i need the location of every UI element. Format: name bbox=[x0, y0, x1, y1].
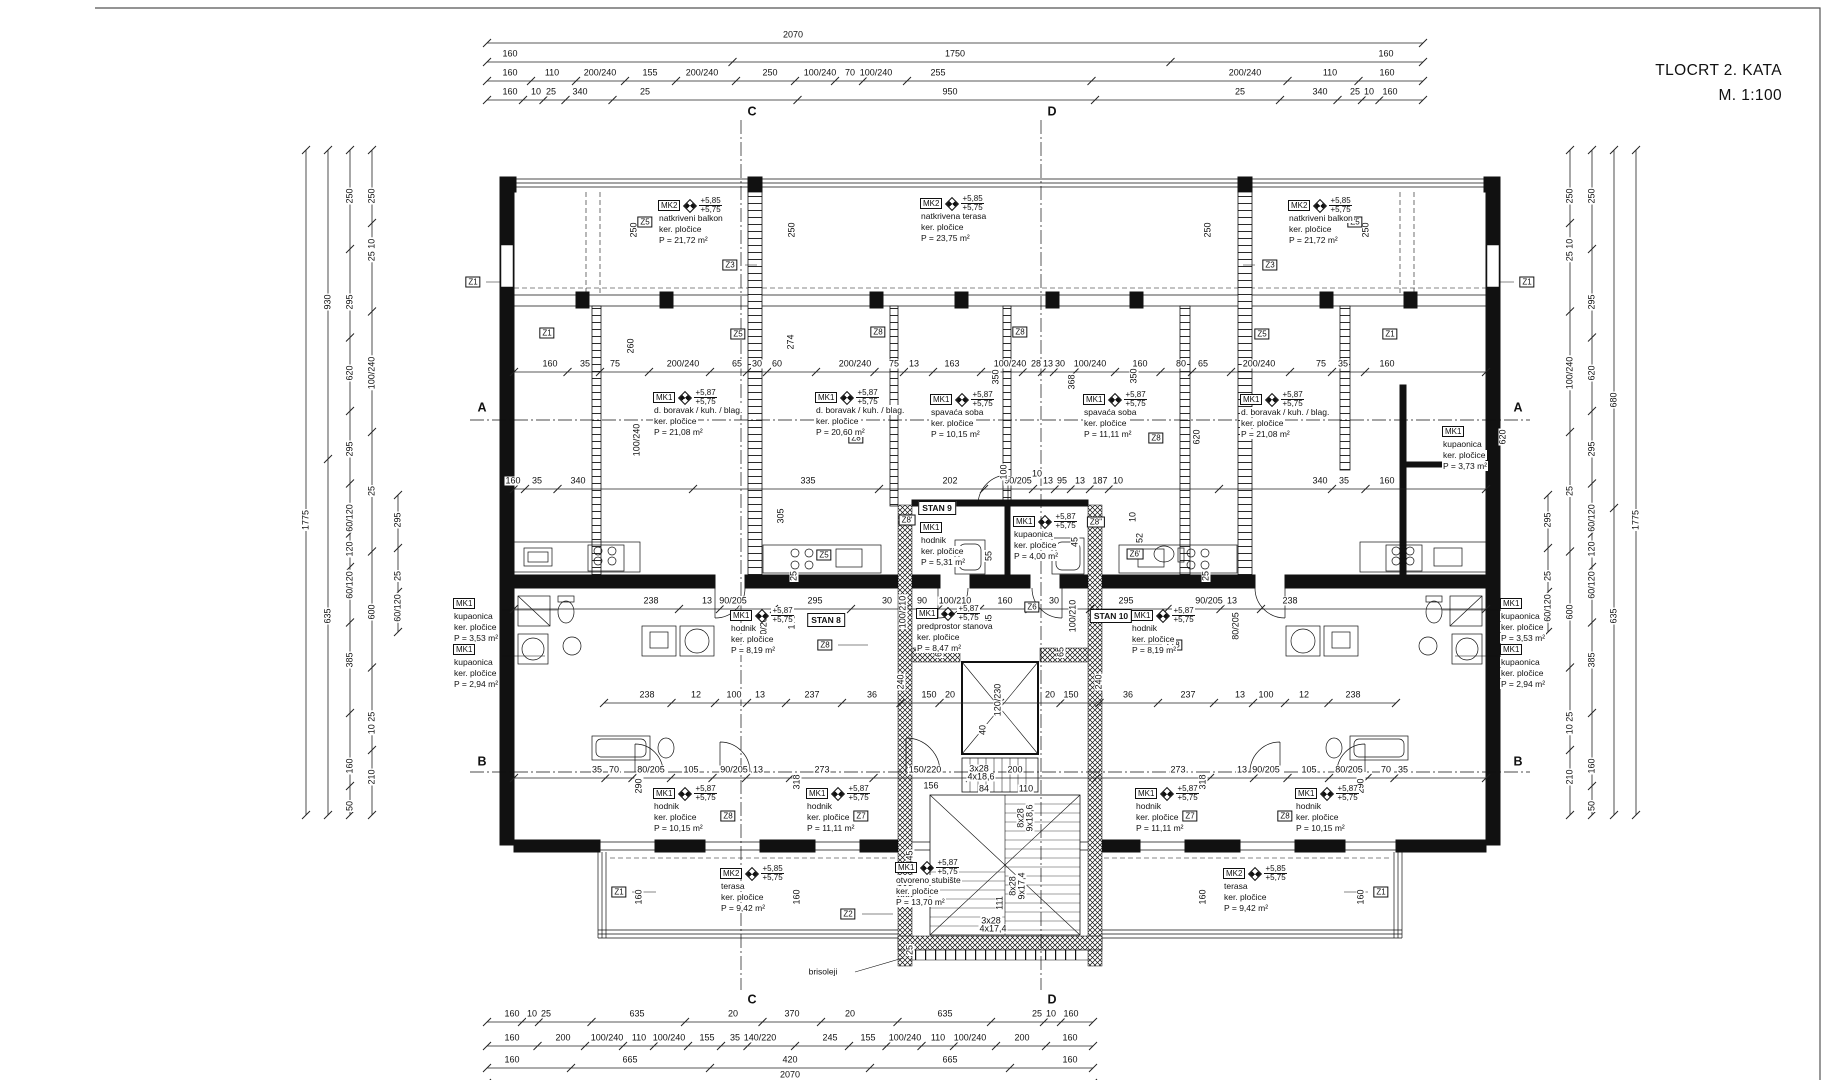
dim-label: 100/240 bbox=[633, 423, 642, 458]
dim-label: 10 bbox=[1112, 477, 1124, 486]
dim-label: 20 bbox=[844, 1010, 856, 1019]
elevation-marker-icon bbox=[678, 390, 692, 404]
mk-box: MK2 bbox=[1288, 200, 1310, 211]
floorplan-canvas: TLOCRT 2. KATA M. 1:100 2070160175016016… bbox=[0, 0, 1847, 1080]
dim-label: 1750 bbox=[944, 50, 966, 59]
dim-label: 10 bbox=[526, 1010, 538, 1019]
dim-label: 250 bbox=[1204, 221, 1213, 238]
dim-label: 150 bbox=[920, 691, 937, 700]
dim-label: 25 bbox=[368, 485, 377, 497]
elevation-marker-icon bbox=[941, 606, 955, 620]
dim-label: 25 bbox=[906, 944, 915, 956]
mk-box: MK1 bbox=[653, 392, 675, 403]
dim-label: 238 bbox=[1344, 691, 1361, 700]
dim-label: 100 bbox=[1000, 463, 1009, 480]
dim-label: 238 bbox=[642, 597, 659, 606]
window-tag: Z5 bbox=[637, 217, 652, 228]
room-label: MK2+5,85+5,75natkrivena terasaker. ploči… bbox=[920, 196, 987, 244]
dim-label: 80/205 bbox=[1334, 766, 1364, 775]
room-label: MK1kupaonicaker. pločiceP = 3,53 m² bbox=[453, 596, 499, 644]
dim-label: 156 bbox=[922, 782, 939, 791]
dim-label: 273 bbox=[813, 766, 830, 775]
dim-label: 318 bbox=[793, 773, 802, 790]
mk-box: MK2 bbox=[1223, 868, 1245, 879]
dim-label: 160 bbox=[346, 757, 355, 774]
dim-label: 620 bbox=[1193, 428, 1202, 445]
elevation-marker-icon bbox=[1320, 786, 1334, 800]
dim-label: 60/120 bbox=[394, 593, 403, 623]
mk-box: MK1 bbox=[653, 788, 675, 799]
dim-label: 240 bbox=[897, 673, 906, 690]
mk-box: MK1 bbox=[1500, 598, 1522, 609]
window-tag: Z1 bbox=[1373, 887, 1388, 898]
dim-label: 120 bbox=[346, 540, 355, 557]
elevation-marker-icon bbox=[831, 786, 845, 800]
dim-label: 65 bbox=[731, 360, 743, 369]
section-letter: C bbox=[745, 108, 758, 117]
dim-label: 100/240 bbox=[590, 1034, 625, 1043]
dim-label: 1775 bbox=[302, 509, 311, 531]
dim-label: 75 bbox=[888, 360, 900, 369]
dim-label: 250 bbox=[1588, 187, 1597, 204]
dim-label: 160 bbox=[1378, 69, 1395, 78]
dim-label: 28 bbox=[1030, 360, 1042, 369]
dim-label: 202 bbox=[941, 477, 958, 486]
dim-label: 13 bbox=[754, 691, 766, 700]
dim-label: 35 bbox=[1337, 360, 1349, 369]
dim-label: 4x18,6 bbox=[966, 773, 995, 782]
dim-label: 295 bbox=[1588, 440, 1597, 457]
dim-label: 200 bbox=[1006, 766, 1023, 775]
mk-box: MK1 bbox=[930, 394, 952, 405]
elevation-marker-icon bbox=[678, 786, 692, 800]
section-letter: B bbox=[1511, 758, 1524, 767]
mk-box: MK1 bbox=[453, 644, 475, 655]
dim-label: 120/230 bbox=[994, 683, 1003, 718]
dim-label: 9x18,6 bbox=[1026, 803, 1035, 832]
window-tag: Z6' bbox=[1127, 549, 1144, 560]
dim-label: 105 bbox=[682, 766, 699, 775]
dim-label: 25 bbox=[545, 88, 557, 97]
title-block: TLOCRT 2. KATA M. 1:100 bbox=[1540, 58, 1782, 108]
section-letter: B bbox=[475, 758, 488, 767]
dim-label: 110 bbox=[631, 1034, 647, 1043]
window-tag: Z1 bbox=[539, 328, 554, 339]
dim-label: 620 bbox=[1499, 428, 1508, 445]
room-label: MK1+5,87+5,75hodnikker. pločiceP = 10,15… bbox=[1295, 786, 1359, 834]
room-label: MK1+5,87+5,75d. boravak / kuh. / blag.ke… bbox=[653, 390, 743, 438]
window-tag: Z5 bbox=[816, 550, 831, 561]
dim-label: 9x17,4 bbox=[1018, 871, 1027, 900]
dim-label: 90 bbox=[916, 597, 928, 606]
dim-label: 274 bbox=[787, 333, 796, 350]
dim-label: 50 bbox=[1588, 800, 1597, 812]
window-tag: Z8 bbox=[817, 640, 832, 651]
dim-label: 210 bbox=[368, 768, 377, 785]
elevation-marker-icon bbox=[955, 392, 969, 406]
mk-box: MK1 bbox=[806, 788, 828, 799]
dim-label: 25 bbox=[1031, 1010, 1043, 1019]
dim-label: 160 bbox=[1061, 1056, 1078, 1065]
dim-label: 13 bbox=[1236, 766, 1248, 775]
mk-box: MK1 bbox=[895, 862, 917, 873]
dim-label: 950 bbox=[941, 88, 958, 97]
dim-label: 160 bbox=[541, 360, 558, 369]
dim-label: 90/205 bbox=[1251, 766, 1281, 775]
dim-label: 13 bbox=[1234, 691, 1246, 700]
dim-label: 665 bbox=[621, 1056, 638, 1065]
dim-label: 100/240 bbox=[888, 1034, 923, 1043]
dim-label: 25 bbox=[1566, 485, 1575, 497]
dim-label: 160 bbox=[1378, 477, 1395, 486]
dim-label: 600 bbox=[1566, 603, 1575, 620]
dim-label: 160 bbox=[503, 1034, 520, 1043]
room-label: MK2+5,85+5,75natkriveni balkonker. ploči… bbox=[658, 198, 724, 246]
dim-label: 160 bbox=[1199, 888, 1208, 905]
dim-label: 10 bbox=[1045, 1010, 1057, 1019]
dim-label: 111 bbox=[996, 895, 1005, 911]
elevation-marker-icon bbox=[1248, 866, 1262, 880]
dim-label: 100 bbox=[725, 691, 742, 700]
dim-label: 350 bbox=[992, 368, 1001, 385]
dim-label: 35 bbox=[1397, 766, 1409, 775]
mk-box: MK1 bbox=[1083, 394, 1105, 405]
dim-label: 245 bbox=[821, 1034, 838, 1043]
dim-label: 100/240 bbox=[993, 360, 1028, 369]
dim-label: 100/240 bbox=[1566, 356, 1575, 391]
dim-label: 35 bbox=[579, 360, 591, 369]
dim-label: 150/220 bbox=[908, 766, 943, 775]
dim-label: 12 bbox=[690, 691, 702, 700]
room-label: MK1+5,87+5,75hodnikker. pločiceP = 8,19 … bbox=[730, 608, 794, 656]
elevation-marker-icon bbox=[945, 196, 959, 210]
dim-label: 60 bbox=[771, 360, 783, 369]
dim-label: 13 bbox=[908, 360, 920, 369]
dim-label: 110 bbox=[930, 1034, 946, 1043]
dim-label: 13 bbox=[752, 766, 764, 775]
apartment-label: STAN 9 bbox=[918, 501, 956, 515]
dim-label: 10 bbox=[1031, 470, 1043, 479]
dim-label: 385 bbox=[1588, 651, 1597, 668]
dim-label: 25 bbox=[1349, 88, 1361, 97]
window-tag: Z8" bbox=[1087, 517, 1105, 528]
mk-box: MK1 bbox=[1135, 788, 1157, 799]
dim-label: 25 bbox=[540, 1010, 552, 1019]
window-tag: Z1 bbox=[1519, 277, 1534, 288]
dim-label: 10 bbox=[530, 88, 542, 97]
dim-label: 295 bbox=[806, 597, 823, 606]
dim-label: 90/205 bbox=[719, 766, 749, 775]
dim-label: 290 bbox=[635, 777, 644, 794]
dim-label: 75 bbox=[1315, 360, 1327, 369]
room-label: MK1+5,87+5,75kupaonicaker. pločiceP = 4,… bbox=[1013, 514, 1077, 562]
dim-label: 70 bbox=[608, 766, 620, 775]
dim-label: 368 bbox=[1068, 373, 1077, 390]
room-label: MK1hodnikker. pločiceP = 5,31 m² bbox=[920, 520, 966, 568]
dim-label: 25 bbox=[394, 570, 403, 582]
dim-label: 150 bbox=[1062, 691, 1079, 700]
window-tag: Z8 bbox=[1148, 433, 1163, 444]
dim-label: 340 bbox=[569, 477, 586, 486]
dim-label: 250 bbox=[761, 69, 778, 78]
dim-label: 35 bbox=[591, 766, 603, 775]
dim-label: 187 bbox=[1091, 477, 1108, 486]
dim-label: 335 bbox=[799, 477, 816, 486]
elevation-marker-icon bbox=[1156, 608, 1170, 622]
drawing-scale: M. 1:100 bbox=[1540, 83, 1782, 108]
elevation-marker-icon bbox=[1313, 198, 1327, 212]
dim-label: 100/240 bbox=[652, 1034, 687, 1043]
dim-label: 25 bbox=[790, 570, 799, 582]
apartment-label: STAN 8 bbox=[807, 613, 845, 627]
mk-box: MK1 bbox=[730, 610, 752, 621]
dim-label: 250 bbox=[368, 187, 377, 204]
dim-label: 200/240 bbox=[685, 69, 720, 78]
dim-label: 160 bbox=[1357, 888, 1366, 905]
dim-label: 84 bbox=[978, 785, 990, 794]
mk-box: MK1 bbox=[1240, 394, 1262, 405]
dim-label: 250 bbox=[346, 187, 355, 204]
mk-box: MK1 bbox=[453, 598, 475, 609]
dim-label: 30 bbox=[751, 360, 763, 369]
dim-label: 12 bbox=[1298, 691, 1310, 700]
dim-label: 318 bbox=[1199, 773, 1208, 790]
dim-label: 60/120 bbox=[346, 570, 355, 600]
dim-label: 100/210 bbox=[1069, 599, 1078, 634]
dim-label: 100/240 bbox=[953, 1034, 988, 1043]
dim-label: 25 10 bbox=[368, 238, 377, 263]
dim-label: 30 bbox=[1048, 597, 1060, 606]
room-label: MK1kupaonicaker. pločiceP = 2,94 m² bbox=[1500, 642, 1546, 690]
dim-label: 295 bbox=[1588, 293, 1597, 310]
dim-label: 635 bbox=[628, 1010, 645, 1019]
dim-label: 930 bbox=[324, 293, 333, 310]
dim-label: 295 bbox=[1117, 597, 1134, 606]
room-label: MK1+5,87+5,75hodnikker. pločiceP = 8,19 … bbox=[1131, 608, 1195, 656]
dim-label: 200/240 bbox=[583, 69, 618, 78]
dim-label: 370 bbox=[783, 1010, 800, 1019]
window-tag: Z5 bbox=[1254, 329, 1269, 340]
dim-label: 160 bbox=[1062, 1010, 1079, 1019]
window-tag: Z8 bbox=[1012, 327, 1027, 338]
dim-label: 255 bbox=[929, 69, 946, 78]
dim-label: 238 bbox=[638, 691, 655, 700]
dim-label: 2070 bbox=[782, 31, 804, 40]
dim-label: 70 bbox=[1380, 766, 1392, 775]
room-label: MK1+5,87+5,75otvoreno stubišteker. ploči… bbox=[895, 860, 962, 908]
section-letter: D bbox=[1045, 108, 1058, 117]
room-label: MK1kupaonicaker. pločiceP = 3,73 m² bbox=[1442, 424, 1488, 472]
dim-label: 20 bbox=[727, 1010, 739, 1019]
window-tag: Z8 bbox=[1277, 811, 1292, 822]
dim-label: 60/120 bbox=[1588, 503, 1597, 533]
dim-label: 420 bbox=[781, 1056, 798, 1065]
dim-label: 350 bbox=[1130, 367, 1139, 384]
window-tag: Z1 bbox=[1382, 329, 1397, 340]
dim-label: 10 25 bbox=[1566, 711, 1575, 736]
dim-label: 100 bbox=[1257, 691, 1274, 700]
mk-box: MK1 bbox=[916, 608, 938, 619]
dim-label: 60/120 bbox=[1588, 570, 1597, 600]
dim-label: 100/240 bbox=[859, 69, 894, 78]
section-letter: A bbox=[1511, 404, 1524, 413]
dim-label: 250 bbox=[788, 221, 797, 238]
dim-label: 13 bbox=[1074, 477, 1086, 486]
dim-label: 340 bbox=[1311, 88, 1328, 97]
dim-label: 200 bbox=[1013, 1034, 1030, 1043]
dim-label: 200 bbox=[554, 1034, 571, 1043]
dim-label: 160 bbox=[503, 1056, 520, 1065]
dim-label: 35 bbox=[729, 1034, 741, 1043]
dim-label: 25 bbox=[1202, 570, 1211, 582]
dim-label: 160 bbox=[501, 88, 518, 97]
dim-label: 100/240 bbox=[1073, 360, 1108, 369]
dim-label: 70 bbox=[844, 69, 856, 78]
dim-label: 160 bbox=[501, 69, 518, 78]
drawing-title: TLOCRT 2. KATA bbox=[1540, 58, 1782, 83]
dim-label: 635 bbox=[1610, 607, 1619, 624]
dim-label: 13 bbox=[1226, 597, 1238, 606]
section-letter: A bbox=[475, 404, 488, 413]
room-label: MK1+5,87+5,75predprostor stanovaker. plo… bbox=[916, 606, 994, 654]
dim-label: 25 10 bbox=[1566, 238, 1575, 263]
dim-label: 238 bbox=[1281, 597, 1298, 606]
dim-label: 250 bbox=[1362, 221, 1371, 238]
dim-label: 160 bbox=[996, 597, 1013, 606]
dim-label: 200/240 bbox=[838, 360, 873, 369]
dim-label: 295 bbox=[1544, 511, 1553, 528]
note-label: brisoleji bbox=[808, 968, 839, 977]
dim-label: 295 bbox=[346, 440, 355, 457]
dim-label: 200/240 bbox=[666, 360, 701, 369]
dim-label: 35 bbox=[531, 477, 543, 486]
dim-label: 273 bbox=[1169, 766, 1186, 775]
window-tag: Z5 bbox=[730, 329, 745, 340]
dim-label: 155 bbox=[641, 69, 658, 78]
dim-label: 295 bbox=[394, 511, 403, 528]
elevation-marker-icon bbox=[1108, 392, 1122, 406]
dim-label: 35 bbox=[1338, 477, 1350, 486]
room-label: MK1kupaonicaker. pločiceP = 2,94 m² bbox=[453, 642, 499, 690]
dim-label: 340 bbox=[571, 88, 588, 97]
mk-box: MK1 bbox=[920, 522, 942, 533]
dim-label: 13 bbox=[1042, 360, 1054, 369]
dim-label: 160 bbox=[1381, 88, 1398, 97]
apartment-label: STAN 10 bbox=[1090, 609, 1132, 623]
dim-label: 250 bbox=[1566, 187, 1575, 204]
dim-label: 13 bbox=[701, 597, 713, 606]
mk-box: MK1 bbox=[1442, 426, 1464, 437]
dim-label: 600 bbox=[368, 603, 377, 620]
dim-label: 40 bbox=[979, 724, 988, 736]
dim-label: 160 bbox=[503, 1010, 520, 1019]
mk-box: MK1 bbox=[1295, 788, 1317, 799]
dim-label: 25 bbox=[1234, 88, 1246, 97]
mk-box: MK1 bbox=[815, 392, 837, 403]
room-label: MK1+5,87+5,75spavaća sobaker. pločiceP =… bbox=[930, 392, 994, 440]
dim-label: 20 bbox=[1044, 691, 1056, 700]
dim-label: 160 bbox=[635, 888, 644, 905]
dim-label: 100/240 bbox=[368, 356, 377, 391]
room-label: MK1+5,87+5,75hodnikker. pločiceP = 11,11… bbox=[1135, 786, 1199, 834]
dim-label: 10 25 bbox=[368, 711, 377, 736]
dim-label: 36 bbox=[866, 691, 878, 700]
dim-label: 680 bbox=[1610, 391, 1619, 408]
dim-label: 160 bbox=[1377, 50, 1394, 59]
dim-label: 160 bbox=[1378, 360, 1395, 369]
elevation-marker-icon bbox=[1038, 514, 1052, 528]
window-tag: Z1 bbox=[465, 277, 480, 288]
dim-label: 160 bbox=[501, 50, 518, 59]
room-label: MK2+5,85+5,75terasaker. pločiceP = 9,42 … bbox=[720, 866, 784, 914]
dim-label: 295 bbox=[346, 293, 355, 310]
mk-box: MK1 bbox=[1013, 516, 1035, 527]
dim-label: 200/240 bbox=[1242, 360, 1277, 369]
dim-label: 240 bbox=[1095, 673, 1104, 690]
elevation-marker-icon bbox=[683, 198, 697, 212]
dim-label: 25 bbox=[639, 88, 651, 97]
dim-label: 13 bbox=[1042, 477, 1054, 486]
dim-label: 75 bbox=[609, 360, 621, 369]
dim-label: 160 bbox=[1061, 1034, 1078, 1043]
dim-label: 110 bbox=[1018, 785, 1034, 794]
dim-label: 260 bbox=[627, 337, 636, 354]
window-tag: Z8 bbox=[870, 327, 885, 338]
dim-label: 140/220 bbox=[743, 1034, 778, 1043]
window-tag: Z2 bbox=[840, 909, 855, 920]
dim-label: 100/240 bbox=[803, 69, 838, 78]
mk-box: MK2 bbox=[658, 200, 680, 211]
dim-label: 620 bbox=[1588, 364, 1597, 381]
dim-label: 60/120 bbox=[346, 503, 355, 533]
elevation-marker-icon bbox=[745, 866, 759, 880]
window-tag: Z8' bbox=[899, 515, 916, 526]
dim-label: 90/205 bbox=[718, 597, 748, 606]
dim-label: 20 bbox=[944, 691, 956, 700]
dim-label: 305 bbox=[777, 507, 786, 524]
room-label: MK1+5,87+5,75d. boravak / kuh. / blag.ke… bbox=[815, 390, 905, 438]
dim-label: 55 bbox=[985, 550, 994, 562]
dim-label: 80/205 bbox=[1232, 611, 1241, 641]
dim-label: 155 bbox=[859, 1034, 876, 1043]
mk-box: MK1 bbox=[1500, 644, 1522, 655]
dim-label: 120 bbox=[1588, 540, 1597, 557]
dim-label: 200/240 bbox=[1228, 69, 1263, 78]
dim-label: 50 bbox=[346, 800, 355, 812]
dim-label: 160 bbox=[793, 888, 802, 905]
dim-label: 155 bbox=[698, 1034, 715, 1043]
dim-label: 620 bbox=[346, 364, 355, 381]
room-label: MK1kupaonicaker. pločiceP = 3,53 m² bbox=[1500, 596, 1546, 644]
room-label: MK2+5,85+5,75terasaker. pločiceP = 9,42 … bbox=[1223, 866, 1287, 914]
dim-label: 635 bbox=[936, 1010, 953, 1019]
dim-label: 2070 bbox=[779, 1071, 801, 1080]
dim-label: 665 bbox=[941, 1056, 958, 1065]
dim-label: 110 bbox=[1322, 69, 1338, 78]
mk-box: MK2 bbox=[920, 198, 942, 209]
window-tag: Z6 bbox=[1024, 602, 1039, 613]
dim-label: 65 bbox=[1197, 360, 1209, 369]
window-tag: Z3 bbox=[722, 260, 737, 271]
dim-label: 36 bbox=[1122, 691, 1134, 700]
dim-label: 52 bbox=[1136, 532, 1145, 544]
dim-label: 105 bbox=[1300, 766, 1317, 775]
dim-label: 95 bbox=[1056, 477, 1068, 486]
dim-label: 10 bbox=[1363, 88, 1375, 97]
dim-label: 90/205 bbox=[1194, 597, 1224, 606]
dim-label: 10 bbox=[1129, 511, 1138, 523]
room-label: MK1+5,87+5,75d. boravak / kuh. / blag.ke… bbox=[1240, 392, 1330, 440]
